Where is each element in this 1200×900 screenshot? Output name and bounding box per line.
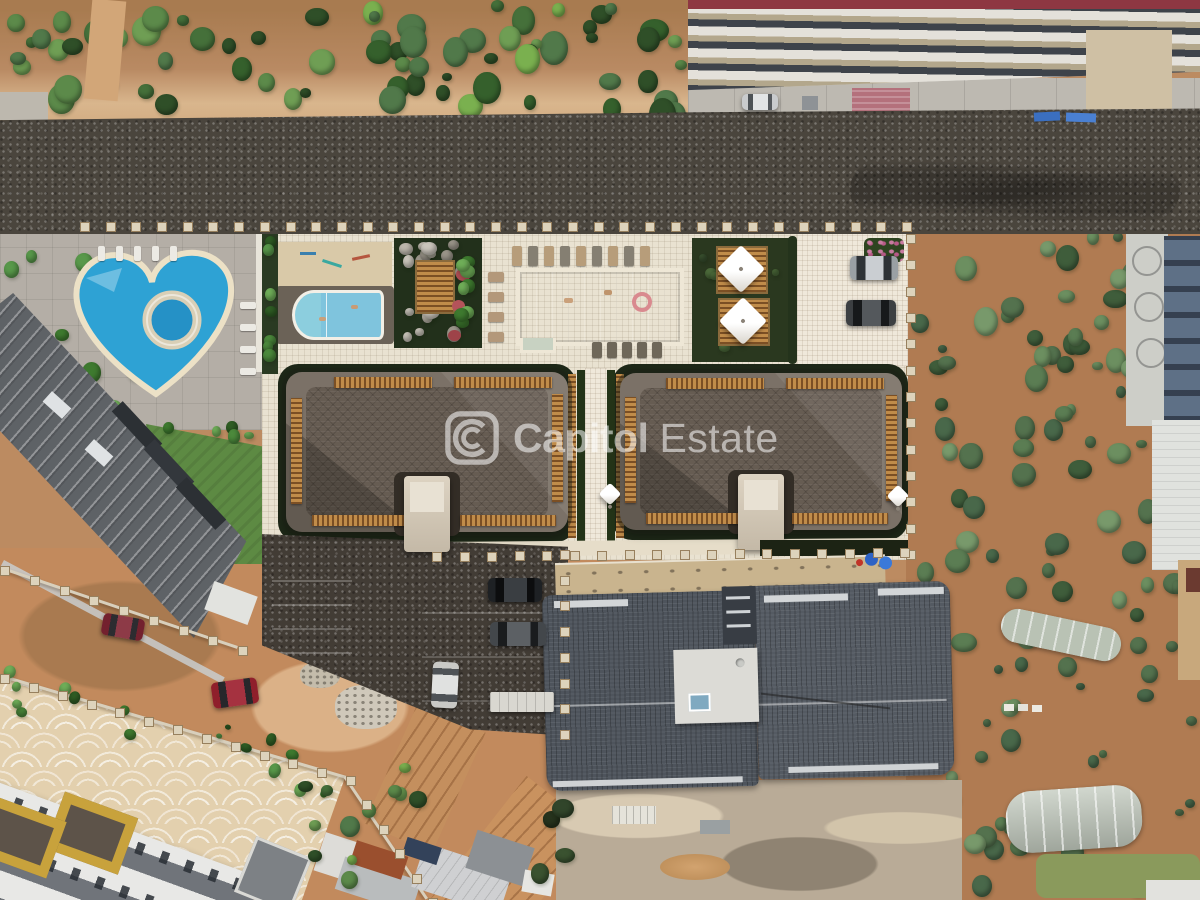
pool-steps (520, 338, 556, 353)
tree (1025, 365, 1049, 393)
sun-lounger (488, 292, 504, 302)
boundary-post (560, 704, 570, 714)
parking-lines (272, 558, 352, 654)
white-lounger (240, 324, 256, 331)
tree (1015, 657, 1029, 672)
stepping-stone (403, 332, 412, 342)
tree (366, 40, 392, 65)
boundary-post (625, 550, 635, 560)
white-lounger (152, 246, 159, 261)
residential-block-b (620, 373, 902, 530)
boundary-post (337, 222, 347, 232)
sun-lounger (640, 246, 650, 266)
wood-screen (568, 374, 576, 538)
bush (267, 762, 283, 780)
boundary-post (440, 222, 450, 232)
fence-post (173, 725, 183, 735)
fence-post (412, 874, 422, 884)
fence-post (202, 734, 212, 744)
rooftop-machine-room (673, 648, 759, 724)
fence-post (379, 825, 389, 835)
fence-post (231, 742, 241, 752)
skylight (688, 693, 710, 712)
sun-lounger (652, 342, 662, 358)
beehive-box (1032, 705, 1042, 712)
aerial-photo-scene: Capitol Estate (0, 0, 1200, 900)
facade-notch (722, 586, 758, 645)
fence-post (149, 616, 159, 626)
fence-post (58, 691, 68, 701)
boundary-post (570, 551, 580, 561)
bush (263, 349, 275, 363)
boundary-post (432, 552, 442, 562)
boundary-post (735, 549, 745, 559)
tree (1186, 716, 1197, 726)
tree (1076, 683, 1085, 690)
tree (155, 94, 178, 115)
sun-lounger (488, 272, 504, 282)
balcony-deck (291, 398, 302, 504)
boundary-post (680, 550, 690, 560)
tree (1166, 641, 1179, 652)
tree (232, 57, 253, 82)
bush (265, 288, 276, 301)
boundary-post (774, 222, 784, 232)
bush (228, 429, 240, 444)
fitness-bar (300, 252, 316, 255)
balcony-deck (646, 513, 742, 524)
stepping-stone (399, 243, 413, 256)
tree (443, 37, 469, 67)
central-path (585, 368, 607, 544)
balcony-deck (786, 378, 884, 389)
boundary-post (825, 222, 835, 232)
swimmer (604, 290, 612, 295)
tree (935, 417, 955, 440)
boundary-post (799, 222, 809, 232)
tree (340, 816, 360, 838)
parked-car-dark (846, 300, 896, 326)
bush (212, 426, 222, 437)
tree (1045, 533, 1070, 555)
bush-column (452, 240, 482, 350)
boundary-post (311, 222, 321, 232)
tree (1097, 510, 1121, 533)
balcony-deck (454, 377, 552, 388)
tree (964, 834, 986, 854)
tree (1055, 406, 1074, 422)
bush (11, 681, 23, 694)
boundary-post (906, 471, 916, 481)
boundary-post (560, 601, 570, 611)
fence-post (87, 700, 97, 710)
tree (959, 443, 982, 470)
white-lounger (240, 368, 256, 375)
boundary-post (465, 222, 475, 232)
boundary-post (487, 552, 497, 562)
balcony-deck (886, 395, 897, 501)
tree (638, 70, 657, 94)
boundary-post (817, 549, 827, 559)
balcony-deck (334, 377, 432, 388)
boundary-post (542, 222, 552, 232)
tree (1085, 436, 1096, 449)
tree (1058, 657, 1077, 677)
boundary-post (460, 552, 470, 562)
courtyard-beige (1086, 30, 1172, 110)
tree (54, 75, 83, 104)
boundary-post (260, 222, 270, 232)
tree (552, 3, 565, 17)
tree (983, 719, 992, 728)
stepping-stone (441, 250, 453, 262)
bush (215, 733, 223, 740)
sun-lounger (592, 246, 602, 266)
tree (637, 27, 661, 52)
garden-bush (4, 261, 19, 278)
tree (158, 52, 173, 70)
boundary-post (619, 222, 629, 232)
site-west-bed (262, 234, 278, 374)
white-trailer (490, 692, 554, 712)
paving-swirl (1134, 292, 1164, 322)
boundary-post (873, 548, 883, 558)
tree-cluster (528, 792, 592, 888)
tree (1044, 419, 1063, 441)
tree (484, 53, 498, 64)
tree (138, 84, 154, 99)
tree (1116, 386, 1126, 398)
balcony-deck (792, 513, 888, 524)
white-lounger (116, 246, 123, 261)
tree (1068, 328, 1082, 346)
boundary-post (542, 551, 552, 561)
fence-post (362, 800, 372, 810)
fence-post (0, 566, 10, 576)
balcony-deck (460, 515, 556, 526)
tree (142, 6, 169, 32)
tree (308, 850, 323, 863)
boundary-post (560, 550, 570, 560)
white-deck (1152, 420, 1200, 570)
main-pool (516, 268, 684, 346)
tree (552, 799, 574, 818)
notch-window (727, 624, 751, 628)
tree (379, 86, 406, 114)
boundary-post (906, 524, 916, 534)
lane-line (326, 293, 327, 337)
kids-pool (292, 290, 384, 340)
boundary-post (131, 222, 141, 232)
bush (123, 728, 138, 741)
tree (1052, 581, 1073, 602)
boundary-post (906, 445, 916, 455)
tree (1175, 809, 1184, 816)
bush (163, 422, 174, 434)
tree (935, 398, 948, 411)
white-lounger (170, 246, 177, 261)
white-lounger (98, 246, 105, 261)
sand-pile (660, 854, 730, 880)
sidewalk-corner (0, 92, 48, 120)
boundary-post (902, 222, 912, 232)
tree (1001, 729, 1021, 752)
boundary-post (234, 222, 244, 232)
satellite-dish (736, 658, 745, 667)
garden-bush (26, 250, 37, 263)
white-lounger (240, 346, 256, 353)
bush (699, 254, 708, 262)
greenhouse-tunnel (998, 606, 1124, 665)
boundary-post (106, 222, 116, 232)
tree (409, 57, 429, 77)
boundary-post (515, 551, 525, 561)
boundary-post (722, 222, 732, 232)
fence-post (29, 683, 39, 693)
tree (1094, 315, 1109, 330)
elevator-tower (738, 474, 784, 550)
boundary-post (697, 222, 707, 232)
boundary-post (560, 576, 570, 586)
boundary-post (363, 222, 373, 232)
tree (53, 11, 70, 33)
tree (994, 665, 1003, 674)
fence-post (288, 759, 298, 769)
parked-car-silver (431, 661, 459, 708)
parked-car-sidewalk (742, 94, 778, 110)
dirt-path (84, 0, 127, 101)
tree (975, 751, 988, 763)
tree-cluster (295, 760, 455, 900)
boundary-post (906, 339, 916, 349)
sun-lounger (622, 342, 632, 358)
pallet-stack (612, 806, 656, 824)
tree (1185, 799, 1195, 808)
tree (400, 26, 427, 58)
ridge-strip (764, 593, 848, 602)
wood-deck (417, 262, 453, 312)
tree (1141, 665, 1158, 684)
tree (1042, 563, 1055, 578)
tree (436, 85, 449, 102)
tree (442, 73, 452, 81)
bush (244, 432, 254, 440)
fence-post (317, 768, 327, 778)
fence-post (346, 776, 356, 786)
tree (668, 35, 682, 48)
bush (719, 343, 730, 351)
boundary-post (208, 222, 218, 232)
sun-lounger (528, 246, 538, 266)
boundary-post (906, 418, 916, 428)
boundary-post (876, 222, 886, 232)
sun-lounger (592, 342, 602, 358)
blue-tarp (1034, 111, 1060, 121)
boundary-post (707, 550, 717, 560)
tree (1013, 439, 1034, 456)
boundary-post (568, 222, 578, 232)
boundary-post (652, 550, 662, 560)
pool-float (632, 292, 652, 312)
balcony-deck (625, 397, 636, 503)
tree (1103, 290, 1128, 309)
boundary-post (560, 679, 570, 689)
fence-post (260, 751, 270, 761)
eave-strip (553, 776, 743, 787)
tree (321, 785, 333, 796)
tree (1027, 330, 1044, 347)
balcony-deck (552, 394, 563, 502)
eave-strip (788, 763, 938, 773)
fence-post (30, 576, 40, 586)
greenhouse-tunnel (1004, 783, 1144, 854)
tree (1141, 577, 1154, 593)
path-hedge (607, 370, 615, 542)
tree (62, 38, 83, 55)
blue-building (1164, 236, 1200, 422)
fence-post (115, 708, 125, 718)
balcony-deck (312, 515, 408, 526)
tree (1001, 297, 1025, 318)
sun-lounger (637, 342, 647, 358)
path-hedge (577, 370, 585, 542)
bush (264, 732, 278, 747)
south-building (535, 546, 965, 807)
boundary-post (560, 730, 570, 740)
tree (1006, 577, 1027, 600)
tree (7, 14, 25, 32)
residential-block-a (286, 372, 568, 532)
tree (251, 31, 267, 46)
bush (265, 306, 277, 317)
tree (399, 763, 411, 773)
boundary-post (414, 222, 424, 232)
stepping-stone (405, 308, 414, 316)
boundary-post (594, 222, 604, 232)
tree (32, 29, 51, 50)
tree (540, 31, 568, 65)
tree (1130, 608, 1144, 622)
boundary-post (906, 313, 916, 323)
fence-post (238, 646, 248, 656)
sun-lounger (544, 246, 554, 266)
fence-post (395, 849, 405, 859)
water-tank-blue (879, 556, 892, 569)
tree (555, 848, 575, 863)
tree (305, 8, 329, 27)
tree (1122, 541, 1147, 564)
boundary-post (157, 222, 167, 232)
sun-lounger (607, 342, 617, 358)
tree (1068, 460, 1091, 480)
tree (938, 356, 956, 370)
swimmer (351, 305, 358, 309)
tree (190, 27, 216, 51)
block-stack (700, 820, 730, 834)
tree (258, 73, 275, 92)
tree (675, 60, 687, 71)
fence-post (60, 586, 70, 596)
site-west-hedge (160, 420, 260, 444)
sun-lounger (624, 246, 634, 266)
tower-cap (744, 480, 778, 510)
tower-cap (410, 482, 444, 512)
boundary-post (906, 234, 916, 244)
fence-post (89, 596, 99, 606)
fence-post (208, 636, 218, 646)
blue-tarp (1066, 112, 1096, 122)
boundary-post (748, 222, 758, 232)
tree (974, 307, 998, 336)
notch-window (726, 610, 750, 614)
tree (1112, 591, 1128, 609)
boundary-post (560, 653, 570, 663)
tree (298, 781, 313, 792)
tree (1107, 443, 1131, 464)
boundary-post (388, 222, 398, 232)
tree (515, 44, 541, 74)
balcony-deck (666, 378, 764, 389)
parked-car-black (488, 578, 542, 602)
tree (1137, 689, 1154, 702)
boundary-post (906, 497, 916, 507)
fence-post (0, 674, 10, 684)
roof-wing-right (754, 581, 955, 780)
tree (599, 73, 621, 91)
notch-window (726, 596, 750, 600)
tree (605, 3, 617, 14)
fence-post (144, 717, 154, 727)
tree (1015, 416, 1035, 440)
tree (341, 871, 358, 890)
bush (454, 308, 470, 322)
swimmer (319, 317, 326, 321)
tree (955, 256, 976, 281)
tree (1130, 637, 1147, 654)
orchard-trees-north (0, 0, 692, 126)
beehive-box (1004, 704, 1014, 711)
boundary-post (491, 222, 501, 232)
white-roof-corner (1146, 880, 1200, 900)
boundary-post (286, 222, 296, 232)
dark-red-roof (1186, 568, 1200, 592)
tree (499, 26, 521, 51)
tree (586, 33, 598, 44)
tree (986, 549, 1000, 563)
tree (1136, 440, 1147, 448)
tree (347, 855, 357, 866)
boundary-post (906, 392, 916, 402)
boundary-post (906, 366, 916, 376)
boundary-post (597, 551, 607, 561)
sun-lounger (488, 332, 504, 342)
boundary-post (790, 549, 800, 559)
tree (473, 72, 501, 105)
tree (491, 0, 504, 12)
tree (524, 95, 537, 110)
tree (300, 88, 311, 98)
sun-lounger (488, 312, 504, 322)
stepping-stone (415, 328, 425, 336)
boundary-post (845, 549, 855, 559)
tree (1088, 755, 1100, 768)
tree (1012, 463, 1035, 486)
boundary-post (851, 222, 861, 232)
boundary-post (906, 287, 916, 297)
boundary-post (183, 222, 193, 232)
white-lounger (240, 302, 256, 309)
tree (177, 15, 188, 25)
